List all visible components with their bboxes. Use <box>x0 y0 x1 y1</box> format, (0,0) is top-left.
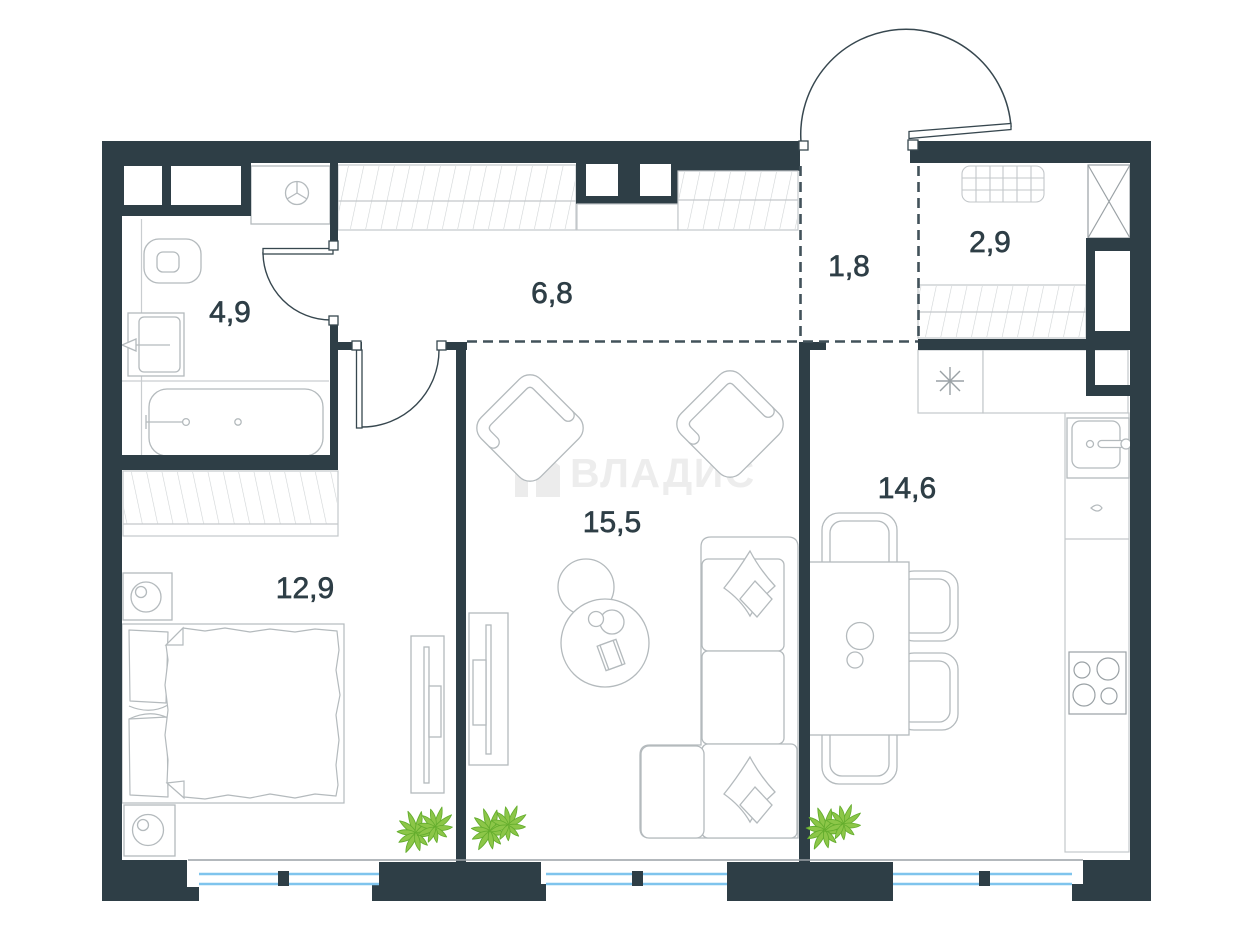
svg-text:14,6: 14,6 <box>878 472 936 505</box>
svg-text:6,8: 6,8 <box>531 277 573 310</box>
svg-text:15,5: 15,5 <box>583 506 641 539</box>
svg-text:12,9: 12,9 <box>276 572 334 605</box>
svg-text:1,8: 1,8 <box>828 250 870 283</box>
svg-text:2,9: 2,9 <box>969 226 1011 259</box>
svg-text:4,9: 4,9 <box>209 296 251 329</box>
